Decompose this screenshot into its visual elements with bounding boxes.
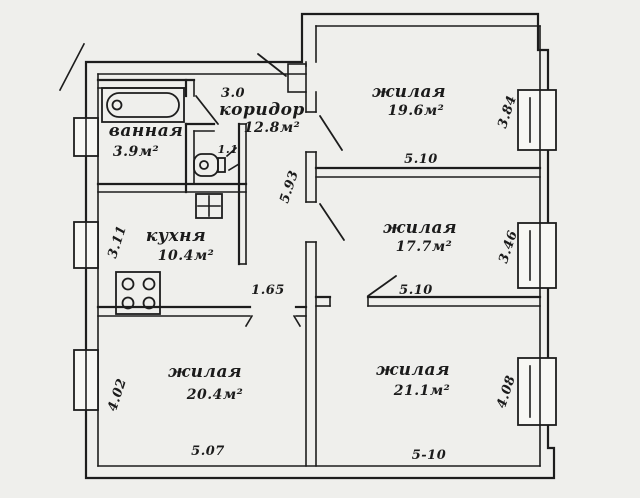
kitchen-sink-icon [196,194,222,218]
dim-bottom-left-width: 5.07 [191,444,225,459]
room-label-living-middle-right: жилая [383,218,457,238]
room-area-bathroom: 3.9м² [113,144,159,160]
dim-door-width: 1.65 [251,283,285,298]
door-leaf-living-bottom-right [368,276,396,296]
floor-plan-drawing: ванная 3.9м² 1.1 3.0 коридор 12.8м² 5.93… [0,0,640,498]
window-living-bottom-right [518,358,556,425]
dim-bottom-left-depth: 4.02 [105,377,130,414]
dim-bottom-right-depth: 4.08 [494,374,519,411]
window-kitchen [74,222,98,268]
room-label-living-top-right: жилая [372,82,446,102]
partition-wall-bottom-left [98,307,306,326]
dim-top-right-depth: 3.84 [495,94,520,131]
labels: ванная 3.9м² 1.1 3.0 коридор 12.8м² 5.93… [105,82,521,463]
door-jamb-tick [294,316,300,326]
door-jamb-tick [246,316,252,326]
window-living-bottom-left [74,350,98,410]
dim-top-right-width: 5.10 [404,152,438,167]
window-bathroom [74,118,98,156]
room-area-kitchen: 10.4м² [158,248,215,264]
room-area-living-bottom-left: 20.4м² [186,387,244,403]
room-label-bathroom: ванная [109,121,184,141]
door-leaf-bathroom [196,96,218,124]
room-label-living-bottom-left: жилая [168,362,242,382]
room-label-living-bottom-right: жилая [376,360,450,380]
dim-corridor-width: 3.0 [221,86,245,101]
room-label-corridor: коридор [219,100,305,120]
bathtub-icon [102,88,184,122]
floor-plan: ванная 3.9м² 1.1 3.0 коридор 12.8м² 5.93… [0,0,640,498]
room-label-kitchen: кухня [146,226,206,246]
room-area-corridor: 12.8м² [244,120,301,136]
room-area-living-middle-right: 17.7м² [396,239,453,255]
central-wall [306,62,316,466]
window-living-top-right [518,90,556,150]
room-area-living-bottom-right: 21.1м² [393,383,451,399]
dim-bottom-right-width: 5-10 [412,448,447,463]
outer-walls [60,14,554,478]
corner-mark [60,44,84,90]
dim-kitchen-width: 3.11 [105,224,130,261]
dim-corridor-length: 5.93 [277,169,302,206]
entry-door [258,54,306,92]
door-leaf-living-top-right [320,116,342,150]
window-living-middle-right [518,223,556,288]
dim-middle-right-width: 5.10 [399,283,433,298]
door-leaf-living-middle-right [320,204,344,240]
toilet-icon [194,154,225,176]
room-area-wc: 1.1 [218,143,239,156]
room-area-living-top-right: 19.6м² [388,103,445,119]
